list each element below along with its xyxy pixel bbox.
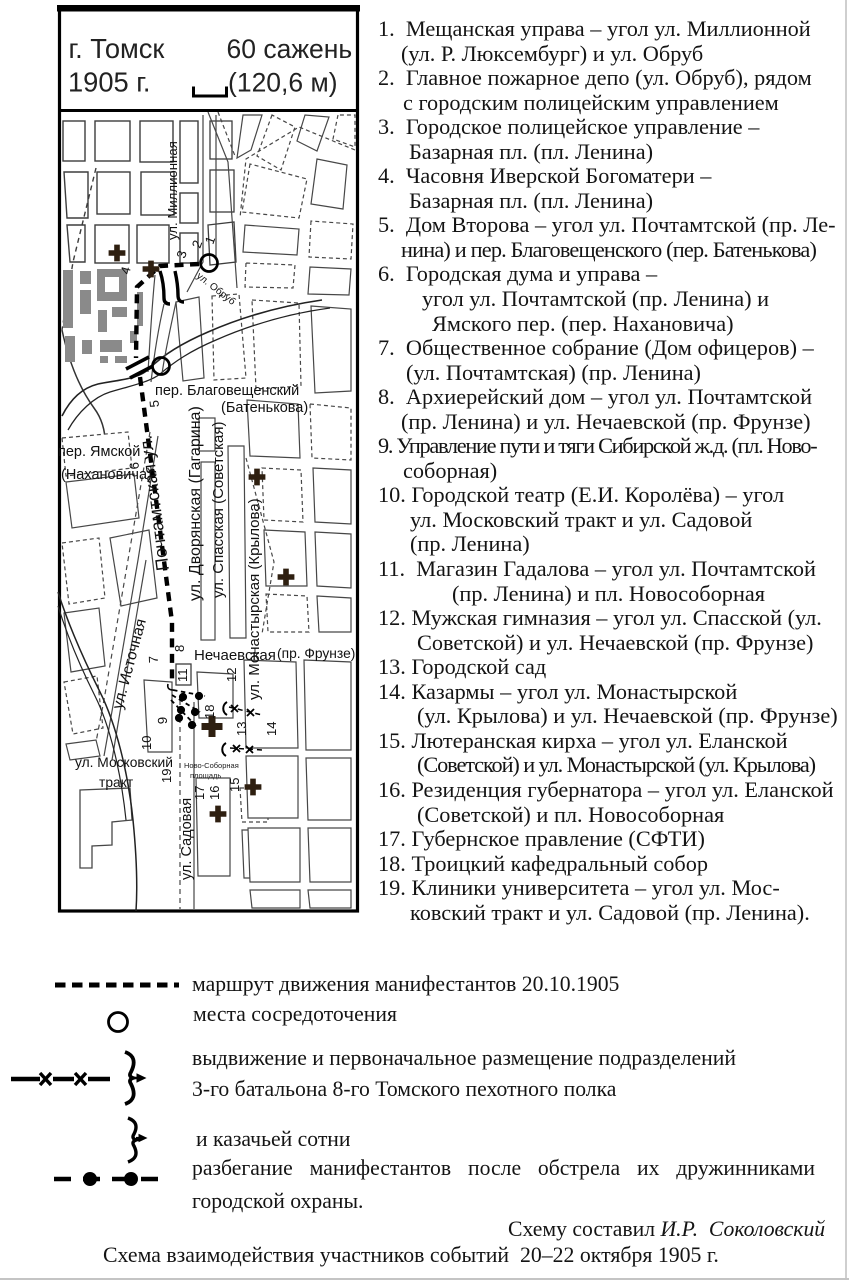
svg-text:площадь: площадь (190, 771, 221, 780)
svg-text:8: 8 (172, 645, 187, 652)
svg-text:7: 7 (146, 656, 161, 664)
svg-text:пер. Благовещенский: пер. Благовещенский (155, 383, 299, 399)
svg-text:Нечаевская: Нечаевская (194, 647, 276, 664)
svg-text:11: 11 (175, 669, 190, 683)
svg-text:10: 10 (139, 736, 154, 750)
svg-text:ул. Миллионная: ул. Миллионная (165, 141, 180, 240)
svg-text:ул. Садовая: ул. Садовая (179, 798, 195, 880)
svg-text:Ново-Соборная: Ново-Соборная (184, 761, 239, 770)
svg-text:15: 15 (227, 778, 242, 792)
svg-text:(120,6 м): (120,6 м) (228, 68, 338, 98)
svg-text:13: 13 (234, 722, 249, 736)
svg-text:17: 17 (192, 786, 207, 800)
svg-text:14: 14 (264, 722, 279, 736)
svg-text:12: 12 (224, 668, 239, 682)
svg-text:тракт: тракт (99, 775, 134, 790)
svg-text:ул. Дворянская (Гагарина): ул. Дворянская (Гагарина) (187, 406, 204, 601)
svg-text:16: 16 (207, 786, 222, 800)
svg-text:ул. Спасская (Советская): ул. Спасская (Советская) (210, 422, 227, 598)
svg-text:ул. Монастырская (Крылова): ул. Монастырская (Крылова) (246, 498, 263, 700)
svg-text:1905 г.: 1905 г. (68, 67, 151, 98)
svg-text:ул. Московский: ул. Московский (75, 755, 173, 770)
svg-text:пер. Ямской: пер. Ямской (58, 444, 140, 460)
svg-text:9: 9 (155, 717, 170, 725)
svg-text:г. Томск: г. Томск (69, 33, 166, 64)
svg-text:5: 5 (146, 400, 162, 409)
svg-text:6: 6 (126, 462, 142, 471)
svg-text:19: 19 (159, 769, 174, 783)
svg-text:60 сажень: 60 сажень (227, 34, 353, 64)
svg-text:(пр. Фрунзе): (пр. Фрунзе) (277, 646, 355, 661)
svg-text:(Батенькова): (Батенькова) (221, 400, 308, 416)
svg-text:18: 18 (202, 705, 217, 719)
